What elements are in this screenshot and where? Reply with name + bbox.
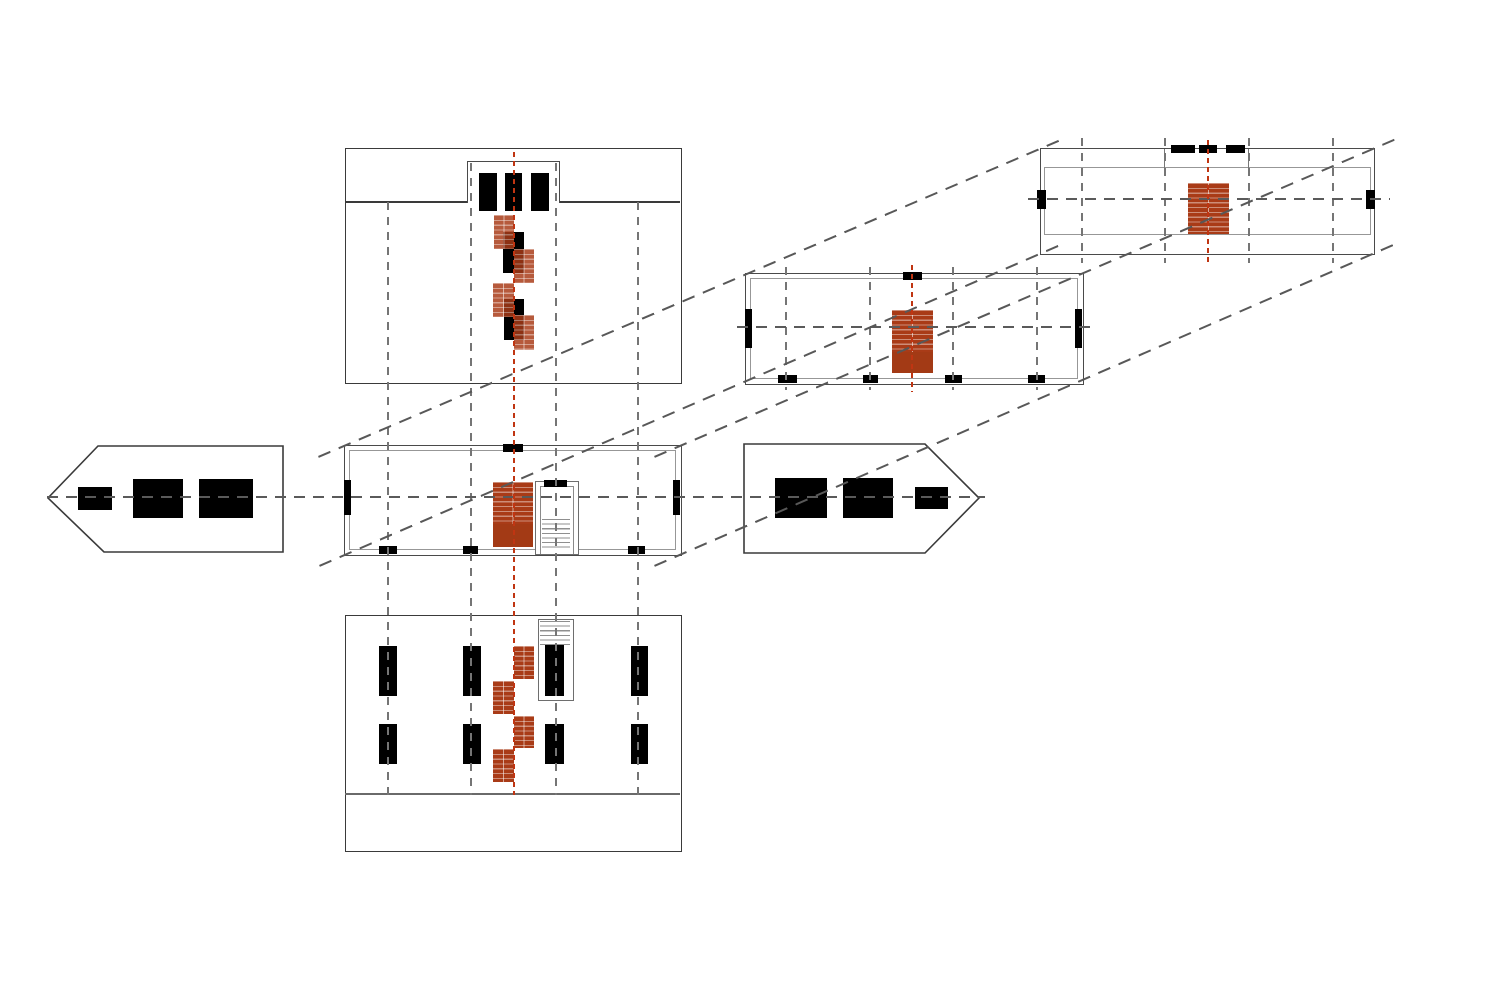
column-axis-line	[1036, 267, 1038, 390]
basement-pier	[631, 724, 648, 764]
elevation-stair-flight	[514, 249, 534, 283]
marker-opening	[78, 487, 112, 510]
stair-axis-red-line	[911, 265, 913, 392]
elevation-window	[479, 173, 497, 211]
stair-axis-red-line	[513, 152, 515, 795]
column-axis-line	[869, 267, 871, 390]
basement-stair-flight	[514, 646, 534, 679]
wall-opening-tick	[745, 309, 752, 348]
roof-ridge-opening	[1171, 145, 1195, 153]
section-axis-line	[737, 326, 1093, 328]
elevation-window	[531, 173, 549, 211]
column-axis-line	[555, 163, 557, 795]
basement-stair-flight	[493, 749, 514, 782]
marker-opening	[915, 487, 948, 509]
column-axis-line	[470, 163, 472, 795]
stair-axis-red-line	[1207, 140, 1209, 262]
marker-opening	[775, 478, 827, 518]
column-axis-line	[1332, 138, 1334, 263]
elevation-stair-flight	[493, 283, 514, 317]
marker-opening	[843, 478, 893, 518]
roof-ridge-opening	[1226, 145, 1245, 153]
basement-stair-flight	[493, 681, 514, 714]
elevation-stair-flight	[494, 215, 514, 249]
basement-stair-flight	[514, 716, 534, 748]
basement-pier	[463, 724, 481, 764]
column-axis-line	[1081, 138, 1083, 263]
marker-opening	[133, 479, 183, 518]
basement-pier	[463, 646, 481, 696]
column-axis-line	[637, 202, 639, 795]
section-axis-line	[47, 496, 985, 498]
column-axis-line	[785, 267, 787, 390]
column-axis-line	[387, 202, 389, 795]
basement-pier	[631, 646, 648, 696]
marker-opening	[199, 479, 253, 518]
wall-opening-tick	[778, 375, 797, 383]
elevation-stair-flight	[514, 315, 534, 350]
wall-opening-tick	[1075, 309, 1082, 348]
column-axis-line	[1164, 138, 1166, 263]
axonometric-exploded-drawing	[0, 0, 1500, 1000]
section-axis-line	[1028, 198, 1390, 200]
